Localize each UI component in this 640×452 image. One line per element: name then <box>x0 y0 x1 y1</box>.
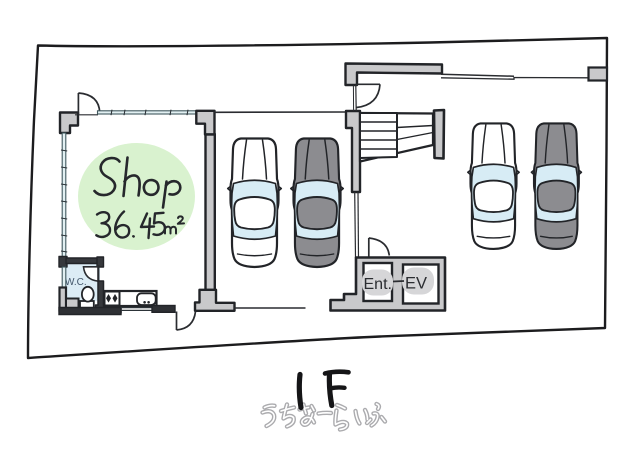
svg-text:W.C.: W.C. <box>65 277 87 288</box>
svg-text:Ent.: Ent. <box>364 276 392 293</box>
svg-text:EV: EV <box>405 275 427 293</box>
